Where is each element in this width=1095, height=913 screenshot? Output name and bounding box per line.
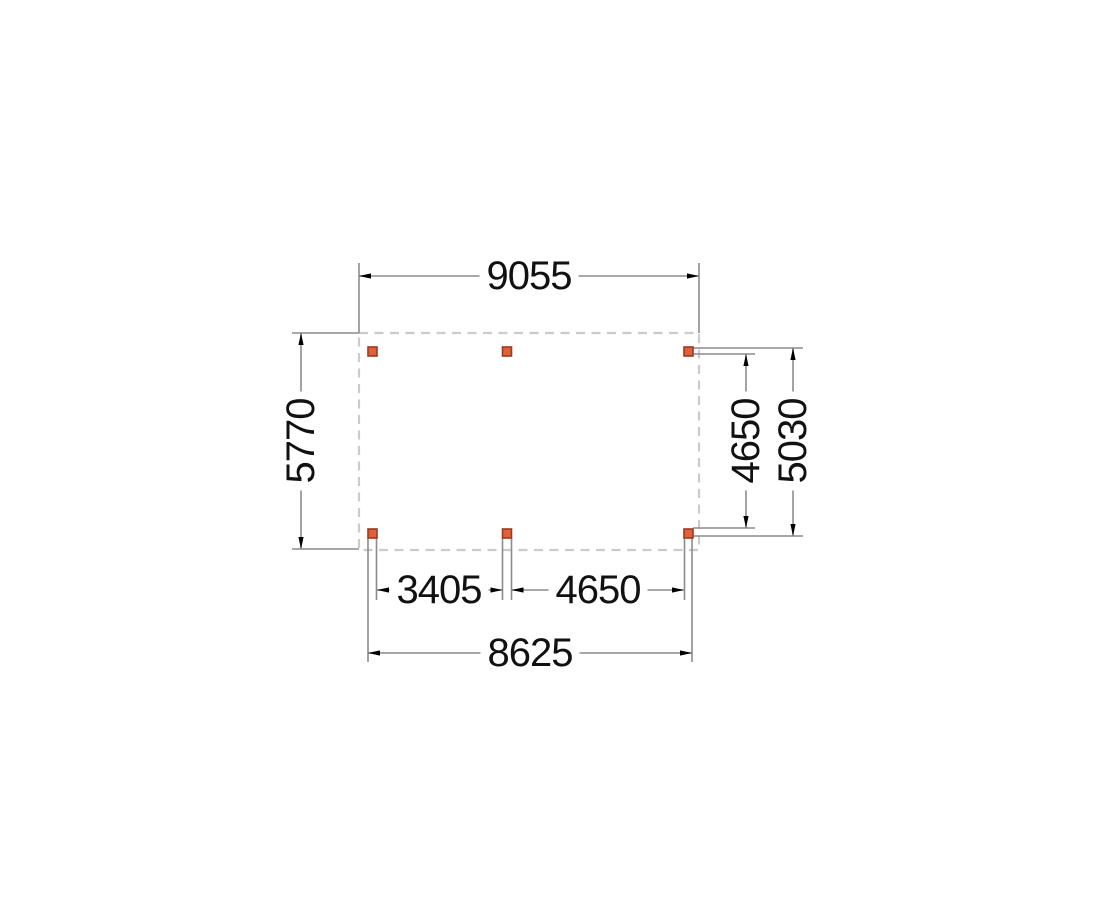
arrow-up-icon	[790, 348, 795, 360]
dim-label-width-top: 9055	[480, 254, 579, 298]
arrow-left-icon	[377, 587, 389, 592]
post-markers	[368, 347, 693, 538]
technical-drawing-canvas: 9055 5770 4650 5030 3405 4650 8625	[0, 0, 1095, 913]
dim-label-width-bottom: 8625	[481, 631, 580, 675]
dim-label-height-left: 5770	[279, 392, 323, 491]
arrow-left-icon	[359, 273, 371, 278]
arrow-down-icon	[298, 537, 303, 549]
arrow-right-icon	[687, 273, 699, 278]
arrow-left-icon	[512, 587, 524, 592]
post-marker-icon	[684, 347, 693, 356]
post-marker-icon	[368, 347, 377, 356]
dim-label-outer-height-right: 5030	[771, 392, 815, 491]
dimension-arrows	[298, 273, 795, 655]
arrow-right-icon	[680, 650, 692, 655]
post-marker-icon	[503, 347, 512, 356]
structure-outline	[359, 333, 699, 550]
dim-label-span-bottom-right: 4650	[549, 568, 648, 612]
arrow-right-icon	[491, 587, 503, 592]
dim-label-span-bottom-left: 3405	[390, 568, 489, 612]
arrow-up-icon	[298, 333, 303, 345]
arrow-left-icon	[368, 650, 380, 655]
arrow-up-icon	[743, 354, 748, 366]
arrow-right-icon	[672, 587, 684, 592]
arrow-down-icon	[790, 524, 795, 536]
dim-label-inner-height-right: 4650	[724, 392, 768, 491]
post-marker-icon	[503, 529, 512, 538]
arrow-down-icon	[743, 516, 748, 528]
post-marker-icon	[684, 529, 693, 538]
plan-drawing	[0, 0, 1095, 913]
post-marker-icon	[368, 529, 377, 538]
